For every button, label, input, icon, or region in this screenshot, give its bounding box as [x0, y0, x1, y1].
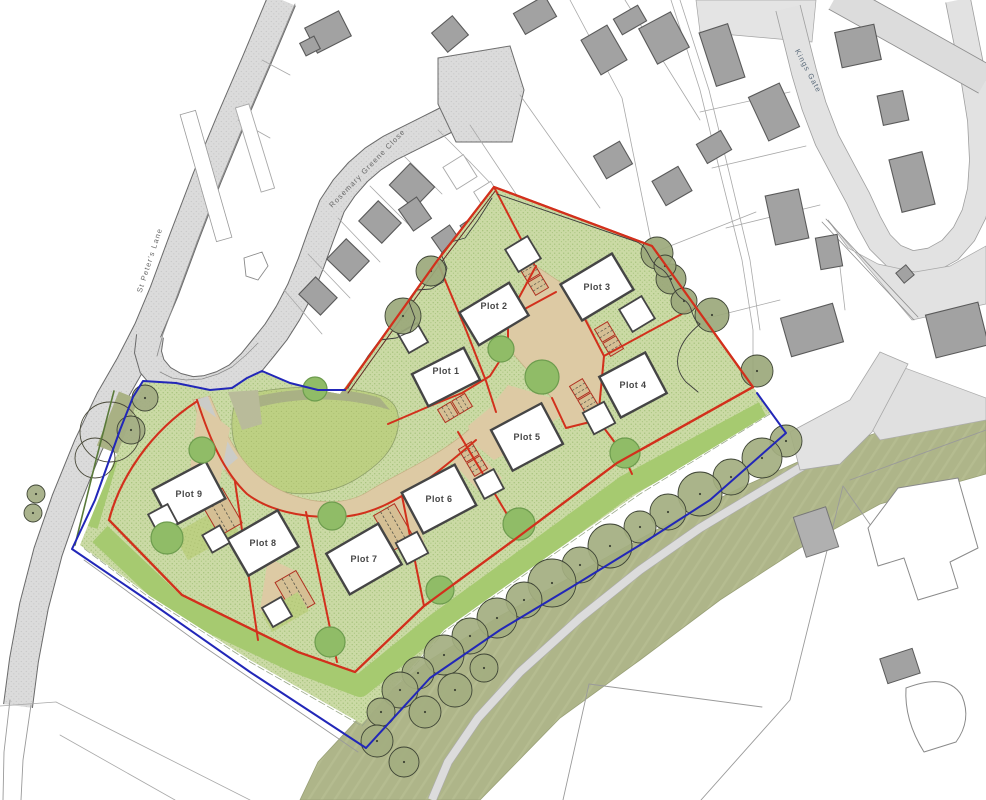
- svg-text:Plot 3: Plot 3: [584, 282, 611, 292]
- svg-text:Plot 4: Plot 4: [620, 380, 647, 390]
- svg-text:Plot 8: Plot 8: [250, 538, 277, 548]
- svg-text:Plot 6: Plot 6: [426, 494, 453, 504]
- svg-text:Plot 1: Plot 1: [433, 366, 460, 376]
- svg-text:Plot 2: Plot 2: [481, 301, 508, 311]
- svg-text:Plot 9: Plot 9: [176, 489, 203, 499]
- svg-text:Plot 7: Plot 7: [351, 554, 378, 564]
- svg-text:Plot 5: Plot 5: [514, 432, 541, 442]
